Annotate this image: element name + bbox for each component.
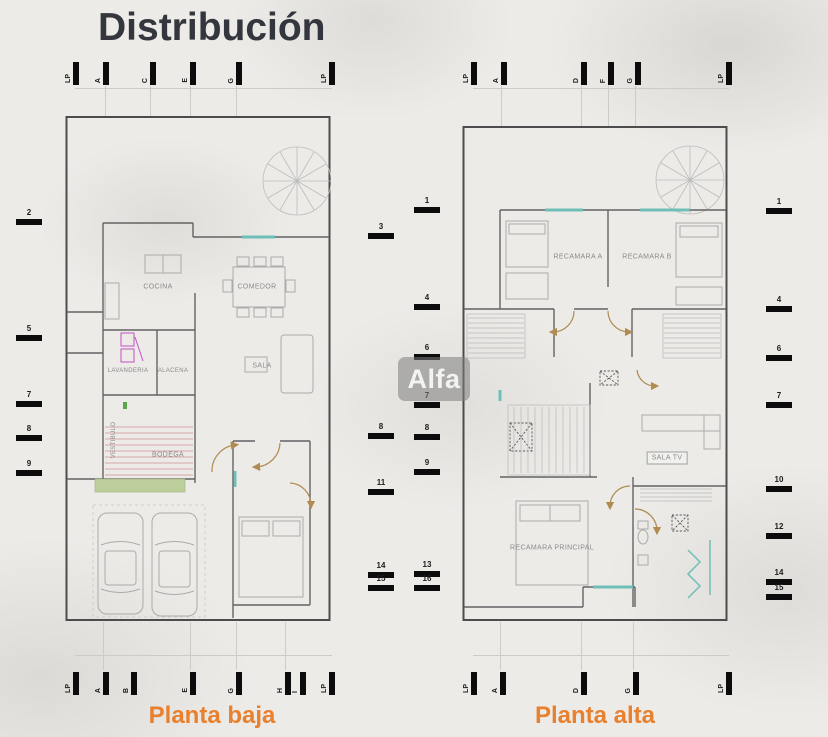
grid-marker-top: LP [471, 62, 477, 85]
room-label-sala-tv: SALA TV [647, 452, 688, 465]
spiral-stair-icon [656, 146, 724, 214]
extension-line [501, 86, 502, 126]
grid-marker-top: E [190, 62, 196, 85]
grid-marker-side: 7 [766, 402, 792, 408]
grid-marker-label: 3 [379, 223, 383, 231]
extension-line [473, 88, 729, 89]
grid-marker-side: 15 [766, 594, 792, 600]
grid-marker-bottom: E [190, 672, 196, 695]
grid-marker-label: LP [463, 684, 470, 693]
grid-marker-label: 8 [27, 425, 31, 433]
grid-marker-top: G [635, 62, 641, 85]
grid-marker-side: 12 [766, 533, 792, 539]
extension-line [75, 88, 332, 89]
grid-marker-bottom: G [236, 672, 242, 695]
extension-line [190, 622, 191, 670]
planta-alta-drawing [462, 125, 728, 622]
grid-marker-top: LP [726, 62, 732, 85]
grid-marker-top: F [608, 62, 614, 85]
floorplan-planta-alta: RECAMARA A RECAMARA B SALA TV RECAMARA P… [462, 125, 728, 622]
extension-line [236, 622, 237, 670]
grid-marker-label: G [625, 688, 632, 693]
grid-marker-side: 5 [16, 335, 42, 341]
extension-line [285, 622, 286, 670]
grid-marker-label: A [95, 688, 102, 693]
garden-strip [95, 479, 185, 492]
grid-marker-label: 6 [777, 345, 781, 353]
bed [239, 517, 303, 597]
grid-marker-bottom: A [500, 672, 506, 695]
grid-marker-label: LP [321, 684, 328, 693]
grid-marker-side: 11 [368, 489, 394, 495]
grid-marker-side: 7 [16, 401, 42, 407]
grid-marker-bottom: LP [73, 672, 79, 695]
grid-marker-side: 2 [16, 219, 42, 225]
grid-marker-label: 13 [423, 561, 432, 569]
grid-marker-side: 15 [368, 585, 394, 591]
door-marker-green [123, 402, 127, 409]
floorplan-planta-baja: COCINA COMEDOR SALA LAVANDERIA ALACENA V… [65, 115, 331, 622]
grid-marker-label: G [627, 78, 634, 83]
caption-planta-baja: Planta baja [112, 702, 312, 730]
grid-marker-label: H [277, 688, 284, 693]
grid-marker-label: 12 [775, 523, 784, 531]
grid-marker-label: A [492, 688, 499, 693]
extension-line [150, 86, 151, 116]
grid-marker-label: LP [321, 74, 328, 83]
grid-marker-label: 1 [425, 197, 429, 205]
extension-line [581, 86, 582, 126]
room-label-sala: SALA [252, 363, 271, 370]
grid-marker-side: 1 [414, 207, 440, 213]
caption-planta-alta: Planta alta [495, 702, 695, 730]
alfa-watermark: Alfa [398, 357, 470, 401]
grid-marker-bottom: G [633, 672, 639, 695]
grid-marker-label: 2 [27, 209, 31, 217]
grid-marker-label: 8 [425, 424, 429, 432]
grid-marker-label: 6 [425, 344, 429, 352]
spiral-stair-icon [263, 147, 331, 215]
grid-marker-side: 4 [414, 304, 440, 310]
room-label-comedor: COMEDOR [237, 284, 276, 291]
grid-marker-label: 8 [379, 423, 383, 431]
grid-marker-side: 10 [766, 486, 792, 492]
grid-marker-top: C [150, 62, 156, 85]
grid-marker-bottom: H [285, 672, 291, 695]
grid-marker-side: 4 [766, 306, 792, 312]
grid-marker-label: 15 [377, 575, 386, 583]
grid-marker-label: D [573, 78, 580, 83]
extension-line [608, 86, 609, 126]
extension-line [190, 86, 191, 116]
grid-marker-label: 7 [777, 392, 781, 400]
grid-marker-label: A [95, 78, 102, 83]
grid-marker-side: 8 [16, 435, 42, 441]
extension-line [103, 622, 104, 670]
dimension-line [75, 655, 332, 656]
grid-marker-label: LP [463, 74, 470, 83]
grid-marker-bottom: A [103, 672, 109, 695]
room-label-bodega: BODEGA [152, 452, 184, 459]
floorplan-sheet: Distribución [0, 0, 828, 737]
grid-marker-side: 7 [414, 402, 440, 408]
grid-marker-label: LP [65, 74, 72, 83]
grid-marker-label: 4 [777, 296, 781, 304]
closet [467, 314, 721, 358]
grid-marker-side: 6 [766, 355, 792, 361]
grid-marker-label: E [182, 78, 189, 83]
room-label-cocina: COCINA [143, 284, 172, 291]
grid-marker-label: 11 [377, 479, 385, 487]
grid-marker-label: 15 [775, 584, 784, 592]
car [98, 513, 143, 614]
grid-marker-top: A [103, 62, 109, 85]
car [152, 513, 197, 616]
grid-marker-side: 9 [16, 470, 42, 476]
grid-marker-label: G [228, 688, 235, 693]
bed [506, 221, 548, 299]
dimension-line [473, 655, 729, 656]
grid-marker-top: D [581, 62, 587, 85]
room-label-recamara-a: RECAMARA A [553, 254, 602, 261]
grid-marker-side: 3 [368, 233, 394, 239]
grid-marker-top: G [236, 62, 242, 85]
grid-marker-label: 4 [425, 294, 429, 302]
grid-marker-label: A [493, 78, 500, 83]
grid-marker-bottom: B [131, 672, 137, 695]
grid-marker-label: LP [718, 684, 725, 693]
laundry-appliances [121, 333, 143, 362]
grid-marker-label: I [292, 691, 299, 693]
door-swing [553, 311, 657, 531]
grid-marker-bottom: LP [726, 672, 732, 695]
grid-marker-label: LP [65, 684, 72, 693]
watermark-text: Alfa [407, 364, 460, 395]
grid-marker-label: B [123, 688, 130, 693]
driveway-outline [93, 505, 205, 617]
grid-marker-label: 1 [777, 198, 781, 206]
room-label-recamara-principal: RECAMARA PRINCIPAL [510, 545, 594, 552]
grid-marker-label: LP [718, 74, 725, 83]
grid-marker-label: 9 [27, 460, 31, 468]
grid-marker-label: 14 [775, 569, 784, 577]
door-swing [212, 443, 311, 505]
extension-line [236, 86, 237, 116]
grid-marker-label: E [182, 688, 189, 693]
grid-marker-label: 10 [775, 476, 784, 484]
extension-line [635, 86, 636, 126]
grid-marker-top: A [501, 62, 507, 85]
grid-marker-label: 16 [423, 575, 432, 583]
bed [516, 501, 588, 585]
grid-marker-label: 14 [377, 562, 386, 570]
extension-line [633, 622, 634, 670]
grid-marker-bottom: LP [329, 672, 335, 695]
bed [676, 223, 722, 305]
grid-marker-side: 9 [414, 469, 440, 475]
grid-marker-label: C [142, 78, 149, 83]
grid-marker-side: 16 [414, 585, 440, 591]
grid-marker-side: 1 [766, 208, 792, 214]
room-label-vestibulo: VESTIBULO [111, 422, 117, 459]
page-title: Distribución [98, 6, 326, 50]
grid-marker-bottom: I [300, 672, 306, 695]
grid-marker-label: D [573, 688, 580, 693]
extension-line [105, 86, 106, 116]
extension-line [500, 622, 501, 670]
sofa [642, 415, 720, 449]
grid-marker-top: LP [73, 62, 79, 85]
grid-marker-side: 8 [368, 433, 394, 439]
grid-marker-side: 8 [414, 434, 440, 440]
planta-baja-drawing [65, 115, 331, 622]
room-label-lavanderia: LAVANDERIA [108, 368, 149, 374]
extension-line [581, 622, 582, 670]
bathroom-fixtures [638, 489, 712, 598]
grid-marker-label: 5 [27, 325, 31, 333]
room-label-recamara-b: RECAMARA B [622, 254, 671, 261]
grid-marker-top: LP [329, 62, 335, 85]
grid-marker-label: F [600, 79, 607, 83]
grid-marker-label: 9 [425, 459, 429, 467]
grid-marker-bottom: D [581, 672, 587, 695]
grid-marker-bottom: LP [471, 672, 477, 695]
room-label-alacena: ALACENA [158, 368, 188, 374]
stairs [508, 405, 590, 475]
grid-marker-label: G [228, 78, 235, 83]
grid-marker-label: 7 [27, 391, 31, 399]
